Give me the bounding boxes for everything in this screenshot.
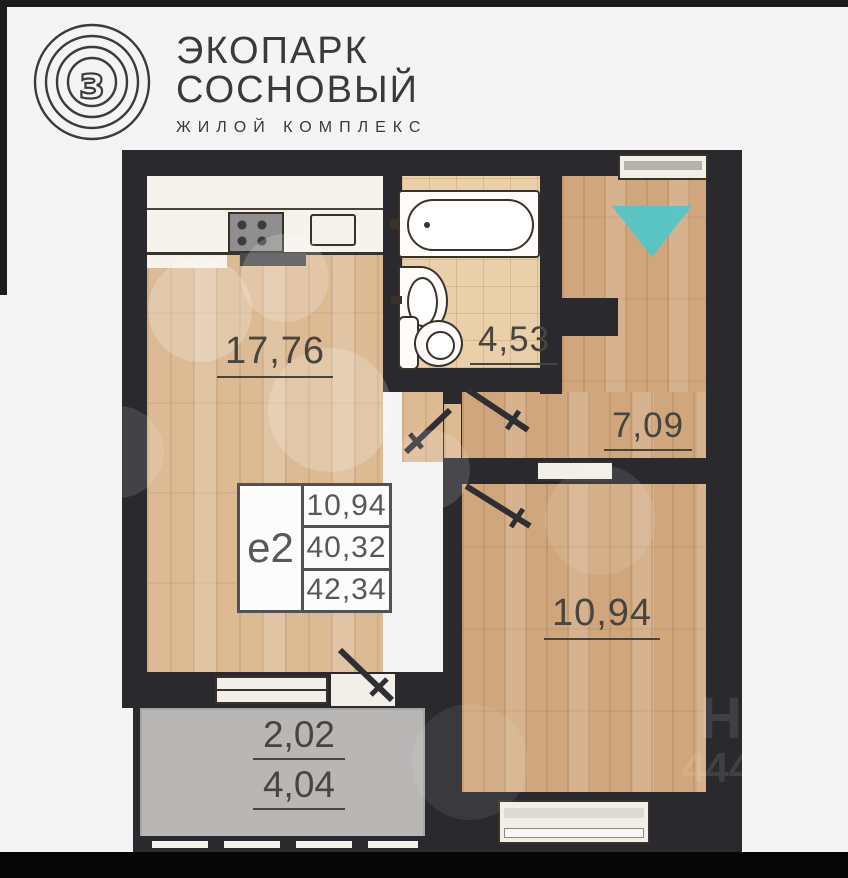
- balcony-full-value: 4,04: [253, 764, 345, 810]
- bedroom-door-leaf: [466, 486, 530, 526]
- living-kitchen-area-value: 17,76: [217, 330, 333, 378]
- bathroom-door-leaf: [468, 390, 528, 430]
- unit-info-box: е2 10,94 40,32 42,34: [237, 483, 392, 613]
- living-kitchen-area-label: 17,76: [200, 330, 350, 378]
- watermark-letter: Н: [700, 686, 742, 751]
- watermark-number: 444: [682, 744, 753, 791]
- compass-triangle-icon: [612, 206, 692, 257]
- bedroom-area-value: 10,94: [544, 592, 660, 640]
- unit-type-cell: е2: [240, 486, 304, 610]
- hallway-area-label: 7,09: [586, 406, 710, 451]
- unit-area-no-balcony: 40,32: [304, 525, 389, 567]
- unit-info-rows: 10,94 40,32 42,34: [304, 486, 389, 610]
- plan-overlay: Н 444: [0, 0, 848, 878]
- listing-image: з ЭКОПАРК СОСНОВЫЙ ЖИЛОЙ КОМПЛЕКС: [0, 0, 848, 878]
- balcony-area-label-reduced: 2,02: [228, 714, 370, 760]
- bathroom-area-label: 4,53: [452, 320, 576, 365]
- unit-total-area: 42,34: [304, 568, 389, 610]
- unit-living-area: 10,94: [304, 486, 389, 525]
- bedroom-area-label: 10,94: [526, 592, 678, 640]
- hallway-area-value: 7,09: [604, 406, 692, 451]
- bathroom-area-value: 4,53: [470, 320, 558, 365]
- balcony-area-label-full: 4,04: [228, 764, 370, 810]
- floor-plan: Н 444 17,76 4,53 7,09 10,94 2,02 4,04 е2…: [0, 0, 848, 878]
- balcony-reduced-value: 2,02: [253, 714, 345, 760]
- balcony-door-leaf: [340, 650, 392, 700]
